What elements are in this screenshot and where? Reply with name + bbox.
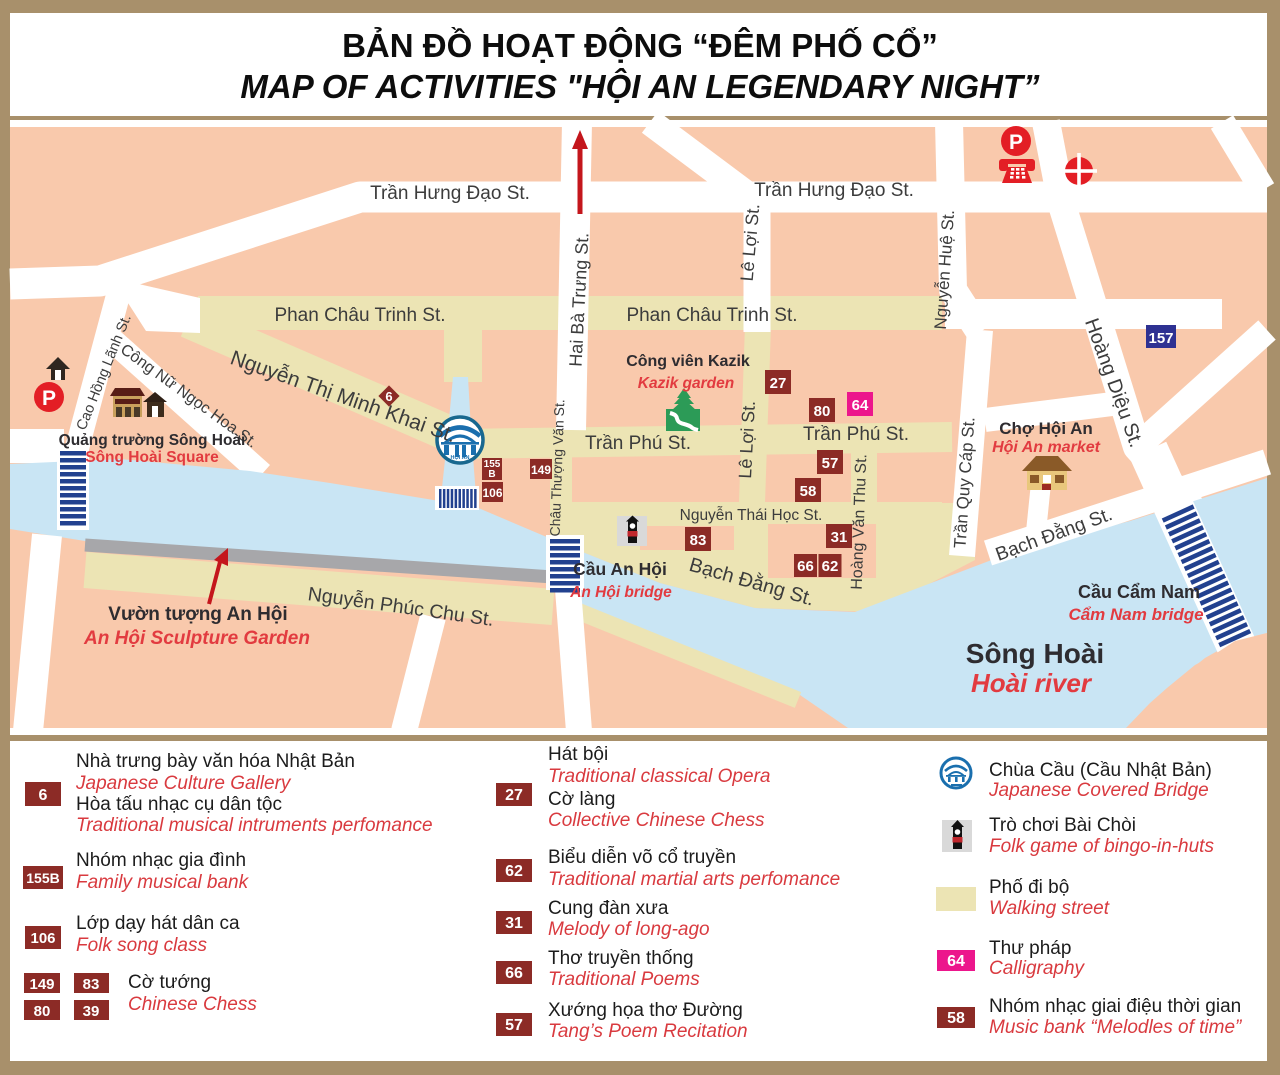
svg-text:Trò chơi Bài Chòi: Trò chơi Bài Chòi bbox=[989, 815, 1136, 836]
svg-text:Traditional martial arts perfo: Traditional martial arts perfomance bbox=[548, 869, 840, 890]
svg-text:Trần Hưng Đạo St.: Trần Hưng Đạo St. bbox=[754, 180, 914, 201]
svg-text:Collective Chinese Chess: Collective Chinese Chess bbox=[548, 810, 765, 831]
svg-text:83: 83 bbox=[690, 532, 707, 549]
svg-text:Quảng trường Sông Hoài: Quảng trường Sông Hoài bbox=[59, 432, 246, 449]
svg-text:Folk game of bingo-in-huts: Folk game of bingo-in-huts bbox=[989, 836, 1214, 857]
svg-text:106: 106 bbox=[30, 930, 55, 947]
svg-text:27: 27 bbox=[770, 375, 787, 392]
svg-text:66: 66 bbox=[797, 558, 814, 575]
svg-text:Vườn tượng An Hội: Vườn tượng An Hội bbox=[108, 604, 287, 625]
svg-text:31: 31 bbox=[505, 915, 523, 932]
svg-text:Trần Phú St.: Trần Phú St. bbox=[585, 433, 691, 454]
svg-text:157: 157 bbox=[1148, 330, 1173, 347]
svg-text:Sông Hoài: Sông Hoài bbox=[966, 638, 1104, 669]
svg-text:Hoài river: Hoài river bbox=[971, 668, 1093, 698]
svg-text:Chùa Cầu (Cầu Nhật Bản): Chùa Cầu (Cầu Nhật Bản) bbox=[989, 760, 1212, 781]
svg-text:Japanese Covered Bridge: Japanese Covered Bridge bbox=[988, 780, 1209, 801]
svg-text:Cẩm Nam bridge: Cẩm Nam bridge bbox=[1068, 605, 1203, 624]
svg-text:Biểu diễn võ cổ truyền: Biểu diễn võ cổ truyền bbox=[548, 846, 736, 868]
svg-text:Melody of long-ago: Melody of long-ago bbox=[548, 919, 710, 940]
svg-text:B: B bbox=[488, 469, 495, 480]
svg-text:155B: 155B bbox=[26, 870, 59, 886]
svg-text:Phố đi bộ: Phố đi bộ bbox=[989, 877, 1069, 898]
svg-text:62: 62 bbox=[822, 558, 839, 575]
svg-text:39: 39 bbox=[83, 1003, 100, 1020]
svg-text:80: 80 bbox=[814, 403, 831, 420]
svg-text:Chợ Hội An: Chợ Hội An bbox=[999, 419, 1093, 438]
svg-text:Phan Châu Trinh St.: Phan Châu Trinh St. bbox=[274, 305, 445, 326]
svg-text:Xướng họa thơ Đường: Xướng họa thơ Đường bbox=[548, 1000, 743, 1021]
svg-text:Cung đàn xưa: Cung đàn xưa bbox=[548, 898, 669, 919]
svg-text:83: 83 bbox=[83, 976, 100, 993]
svg-text:Traditional Poems: Traditional Poems bbox=[548, 969, 700, 990]
svg-text:Nhóm nhạc gia đình: Nhóm nhạc gia đình bbox=[76, 850, 246, 871]
svg-text:Hát bội: Hát bội bbox=[548, 744, 608, 765]
svg-text:Traditional classical Opera: Traditional classical Opera bbox=[548, 766, 770, 787]
svg-text:Nhóm nhạc giai điệu thời gian: Nhóm nhạc giai điệu thời gian bbox=[989, 996, 1241, 1017]
svg-text:Hội An market: Hội An market bbox=[992, 439, 1101, 456]
svg-text:Lớp dạy hát dân ca: Lớp dạy hát dân ca bbox=[76, 913, 240, 934]
svg-text:106: 106 bbox=[482, 486, 502, 500]
svg-text:Walking street: Walking street bbox=[989, 898, 1110, 919]
svg-text:Trần Phú St.: Trần Phú St. bbox=[803, 424, 909, 445]
svg-text:Sông Hoài Square: Sông Hoài Square bbox=[85, 449, 219, 466]
svg-text:57: 57 bbox=[505, 1017, 523, 1034]
svg-text:Công viên Kazik: Công viên Kazik bbox=[626, 353, 750, 370]
svg-text:P: P bbox=[42, 387, 56, 410]
svg-text:P: P bbox=[1009, 131, 1023, 154]
svg-text:An Hội Sculpture Garden: An Hội Sculpture Garden bbox=[83, 628, 310, 649]
svg-text:Nhà trưng bày văn hóa Nhật Bản: Nhà trưng bày văn hóa Nhật Bản bbox=[76, 751, 355, 772]
svg-text:Chinese Chess: Chinese Chess bbox=[128, 994, 257, 1015]
svg-text:Kazik garden: Kazik garden bbox=[638, 375, 734, 392]
svg-text:Cờ làng: Cờ làng bbox=[548, 789, 615, 810]
svg-text:Folk song class: Folk song class bbox=[76, 935, 207, 956]
svg-text:MAP OF ACTIVITIES "HỘI AN LEGE: MAP OF ACTIVITIES "HỘI AN LEGENDARY NIGH… bbox=[240, 67, 1040, 105]
svg-text:Cờ tướng: Cờ tướng bbox=[128, 972, 211, 993]
svg-text:Nguyễn Thái Học St.: Nguyễn Thái Học St. bbox=[680, 507, 823, 524]
svg-text:Calligraphy: Calligraphy bbox=[989, 958, 1086, 979]
svg-text:31: 31 bbox=[831, 529, 848, 546]
svg-text:66: 66 bbox=[505, 965, 523, 982]
svg-text:Tang’s Poem Recitation: Tang’s Poem Recitation bbox=[548, 1021, 748, 1042]
svg-text:Music bank “Melodles of time”: Music bank “Melodles of time” bbox=[989, 1017, 1243, 1038]
svg-text:57: 57 bbox=[822, 455, 839, 472]
svg-text:Cầu An Hội: Cầu An Hội bbox=[573, 559, 667, 579]
svg-text:80: 80 bbox=[34, 1003, 51, 1020]
svg-text:Family musical bank: Family musical bank bbox=[76, 872, 250, 893]
svg-text:6: 6 bbox=[39, 787, 48, 804]
svg-text:HỘI AN: HỘI AN bbox=[450, 453, 469, 461]
svg-text:149: 149 bbox=[29, 976, 54, 993]
svg-text:Traditional musical intruments: Traditional musical intruments perfomanc… bbox=[76, 815, 433, 836]
svg-text:Thơ truyền thống: Thơ truyền thống bbox=[548, 948, 694, 969]
svg-text:Lê Lợi St.: Lê Lợi St. bbox=[735, 400, 759, 479]
svg-text:Cầu Cẩm Nam: Cầu Cẩm Nam bbox=[1078, 582, 1200, 602]
svg-text:Phan Châu Trinh St.: Phan Châu Trinh St. bbox=[626, 305, 797, 326]
svg-text:Trần Hưng Đạo St.: Trần Hưng Đạo St. bbox=[370, 183, 530, 204]
svg-text:64: 64 bbox=[947, 953, 965, 970]
svg-text:Hòa tấu nhạc cụ dân tộc: Hòa tấu nhạc cụ dân tộc bbox=[76, 794, 282, 815]
svg-text:Thư pháp: Thư pháp bbox=[989, 938, 1071, 959]
svg-text:BẢN ĐỒ HOẠT ĐỘNG “ĐÊM PHỐ CỔ”: BẢN ĐỒ HOẠT ĐỘNG “ĐÊM PHỐ CỔ” bbox=[342, 26, 938, 64]
svg-text:62: 62 bbox=[505, 863, 523, 880]
svg-text:Japanese Culture Gallery: Japanese Culture Gallery bbox=[75, 773, 292, 794]
svg-text:58: 58 bbox=[947, 1010, 965, 1027]
svg-text:58: 58 bbox=[800, 483, 817, 500]
svg-text:An Hội bridge: An Hội bridge bbox=[569, 584, 672, 601]
svg-text:27: 27 bbox=[505, 787, 523, 804]
svg-text:64: 64 bbox=[852, 397, 869, 414]
